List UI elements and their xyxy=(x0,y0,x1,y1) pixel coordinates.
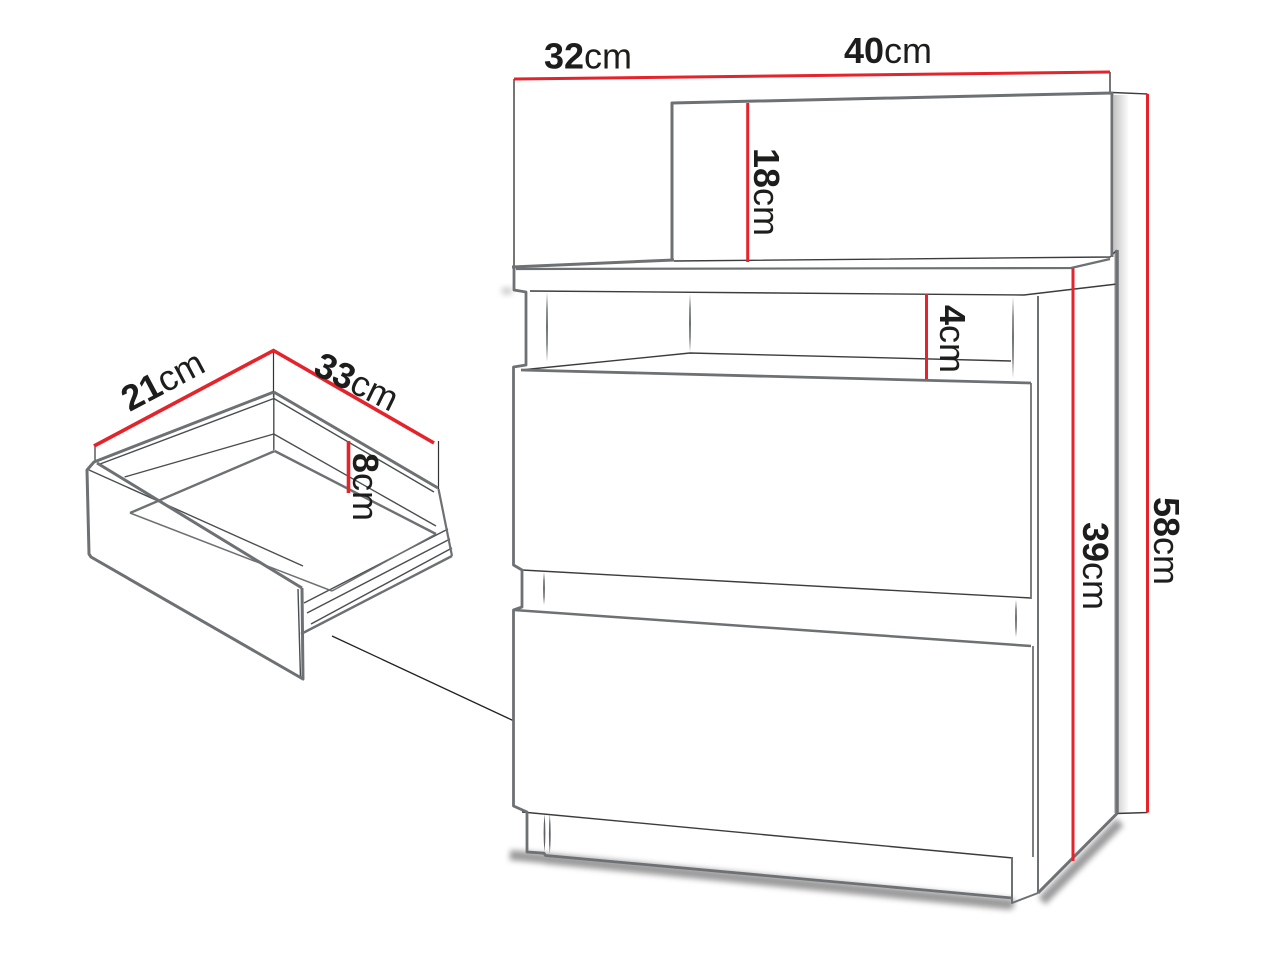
svg-text:32cm: 32cm xyxy=(544,36,632,77)
svg-text:18cm: 18cm xyxy=(746,148,787,236)
svg-text:4cm: 4cm xyxy=(932,305,973,373)
svg-text:58cm: 58cm xyxy=(1146,497,1187,585)
svg-text:33cm: 33cm xyxy=(308,344,405,419)
svg-text:8cm: 8cm xyxy=(345,453,386,521)
svg-text:40cm: 40cm xyxy=(844,30,932,71)
svg-text:39cm: 39cm xyxy=(1075,522,1116,610)
